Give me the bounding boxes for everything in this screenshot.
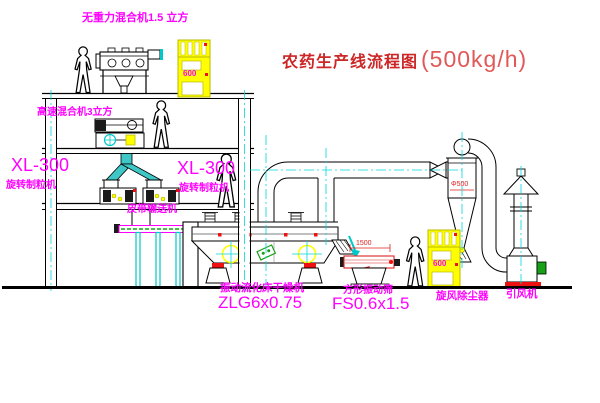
y-chute — [106, 154, 161, 181]
worker-figure-ground — [407, 237, 424, 286]
worker-figure-top — [75, 47, 91, 93]
label-fan-name: 引风机 — [506, 289, 538, 300]
label-cyclone-name: 旋风除尘器 — [436, 291, 489, 302]
dimension-sieve-width: 1500 — [356, 240, 372, 247]
flow-diagram: 农药生产线流程图 (500kg/h) 无重力混合机1.5 立方 高速混合机3立方… — [0, 0, 600, 403]
induced-draft-fan — [505, 256, 546, 287]
label-second-mixer: 高速混合机3立方 — [37, 108, 113, 118]
zero-gravity-mixer — [96, 48, 163, 93]
label-granulator-right-model: XL-300 — [177, 159, 235, 177]
fluid-bed-dryer — [183, 213, 354, 288]
title-capacity: (500kg/h) — [421, 46, 527, 73]
label-sieve-model: FS0.6x1.5 — [332, 295, 410, 312]
cabinet1-text: 600 — [183, 70, 196, 78]
label-granulator-right-name: 旋转制粒机 — [179, 184, 229, 194]
label-dryer-model: ZLG6x0.75 — [218, 294, 302, 311]
cabinet2-text: 600 — [433, 260, 446, 268]
worker-figure-mid — [153, 101, 169, 147]
label-dryer-name: 振动流化床干燥机 — [220, 283, 304, 294]
belt-conveyor — [114, 210, 193, 287]
label-belt-conveyor: 皮带输送机 — [127, 205, 177, 215]
label-granulator-left-model: XL-300 — [11, 156, 69, 174]
page-title: 农药生产线流程图 (500kg/h) — [282, 46, 527, 73]
title-text: 农药生产线流程图 — [282, 48, 418, 72]
label-top-mixer: 无重力混合机1.5 立方 — [82, 13, 188, 24]
granulator-left — [100, 180, 136, 204]
exhaust-duct — [258, 162, 448, 222]
granulator-right — [143, 180, 179, 204]
dimension-cyclone-diameter: Φ500 — [451, 181, 468, 188]
label-granulator-left-name: 旋转制粒机 — [6, 181, 56, 191]
high-speed-mixer — [95, 119, 144, 148]
